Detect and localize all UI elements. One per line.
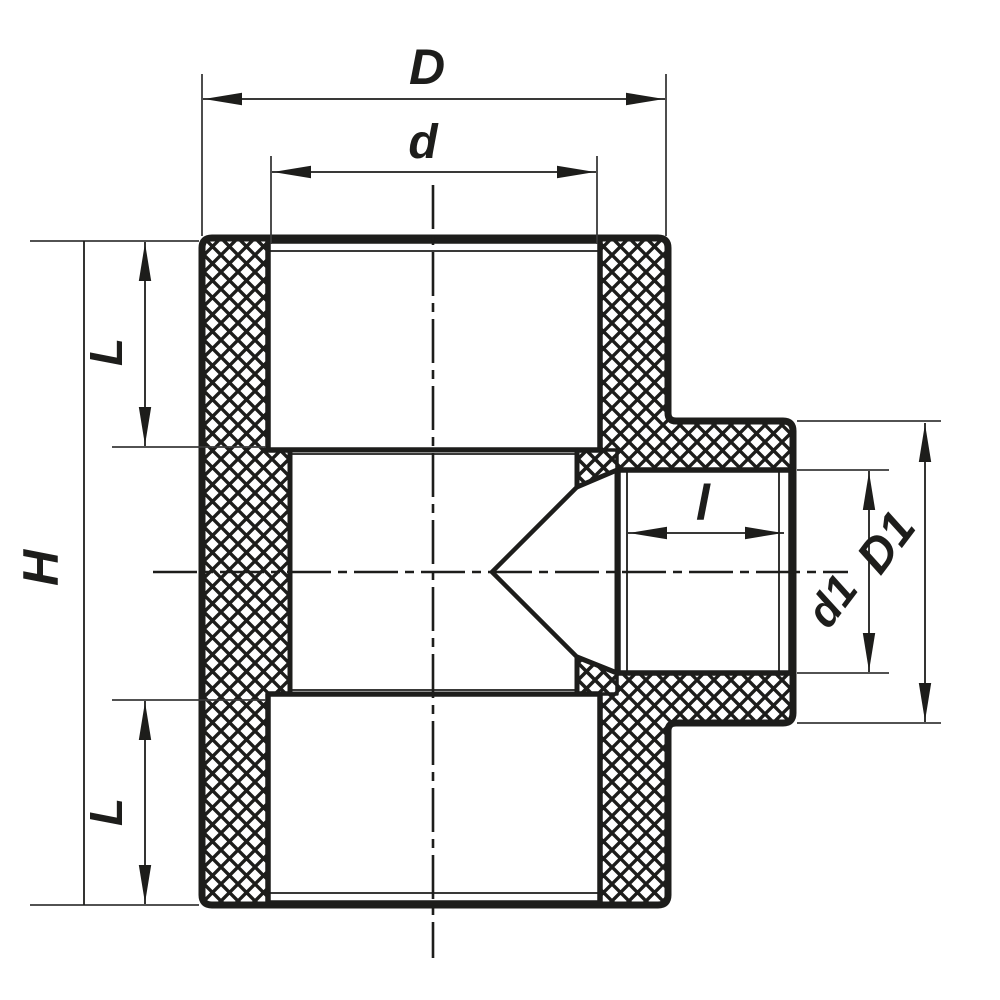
technical-drawing-page: D d L H L l d1 D1 (0, 0, 1000, 1000)
dimension-label-D: D (409, 39, 445, 95)
dimension-label-l: l (696, 475, 711, 531)
dimension-label-H: H (13, 549, 69, 586)
dimension-label-d1: d1 (797, 566, 867, 637)
tee-cross-section-drawing: D d L H L l d1 D1 (0, 0, 1000, 1000)
dimension-label-d: d (408, 116, 439, 169)
dimension-label-D1: D1 (847, 502, 926, 583)
dimension-label-L-bottom: L (80, 798, 132, 826)
dimension-label-L-top: L (80, 338, 132, 366)
